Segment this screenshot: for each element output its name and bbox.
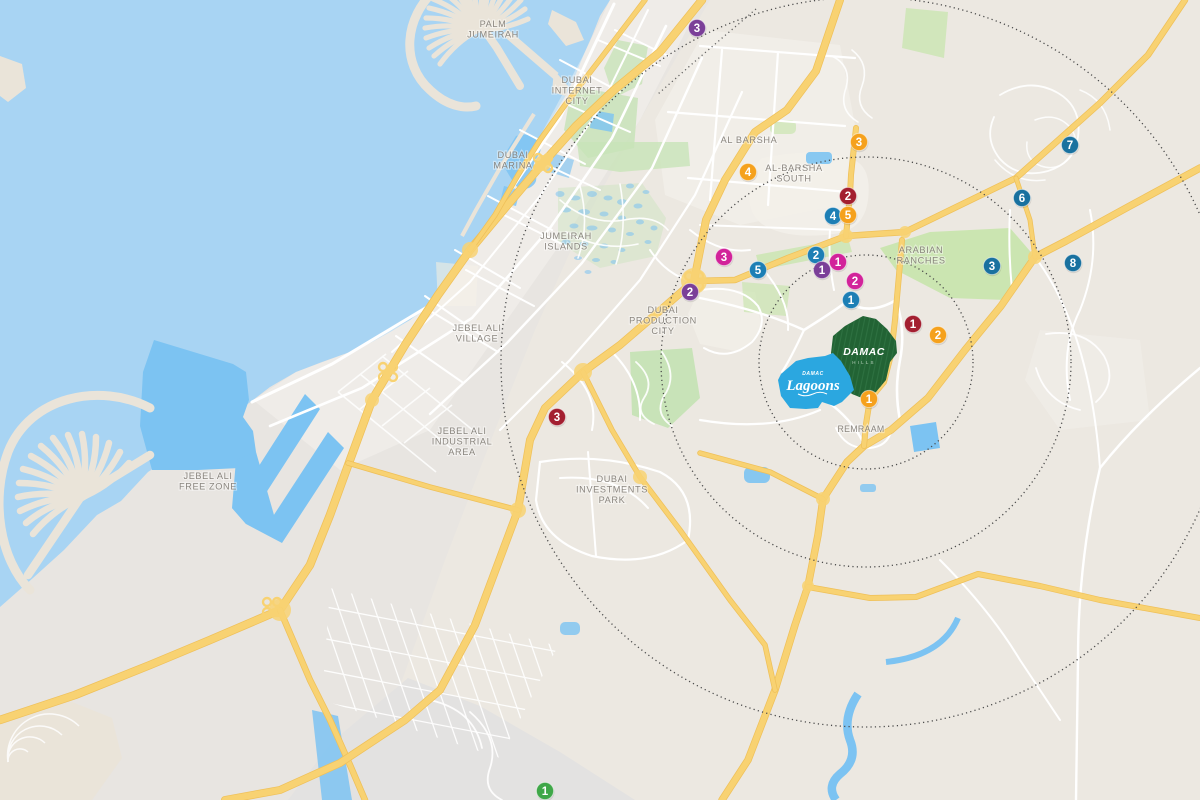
svg-text:3: 3 <box>694 23 700 35</box>
svg-text:1: 1 <box>866 394 873 406</box>
svg-text:3: 3 <box>989 261 995 273</box>
svg-text:1: 1 <box>819 265 826 277</box>
svg-text:DUBAIMARINA: DUBAIMARINA <box>493 150 533 171</box>
svg-text:1: 1 <box>910 319 917 331</box>
svg-text:7: 7 <box>1067 140 1073 152</box>
svg-text:JUMEIRAHISLANDS: JUMEIRAHISLANDS <box>540 231 592 252</box>
svg-text:Lagoons: Lagoons <box>785 378 840 394</box>
svg-text:DAMAC: DAMAC <box>802 371 824 377</box>
svg-text:8: 8 <box>1070 258 1077 270</box>
svg-text:6: 6 <box>1019 193 1025 205</box>
svg-text:ARABIANRANCHES: ARABIANRANCHES <box>896 245 945 266</box>
svg-text:3: 3 <box>856 137 862 149</box>
svg-text:5: 5 <box>845 210 852 222</box>
svg-text:2: 2 <box>845 191 851 203</box>
svg-text:JEBEL ALIVILLAGE: JEBEL ALIVILLAGE <box>453 323 502 344</box>
svg-text:JEBEL ALIFREE ZONE: JEBEL ALIFREE ZONE <box>179 471 237 492</box>
svg-text:2: 2 <box>852 276 858 288</box>
svg-text:2: 2 <box>813 250 819 262</box>
svg-text:3: 3 <box>554 412 560 424</box>
svg-text:5: 5 <box>755 265 762 277</box>
svg-text:DAMAC: DAMAC <box>843 346 885 358</box>
svg-text:4: 4 <box>830 211 837 223</box>
svg-text:1: 1 <box>835 257 842 269</box>
svg-text:AL BARSHA: AL BARSHA <box>721 135 778 145</box>
svg-text:1: 1 <box>848 295 855 307</box>
svg-text:2: 2 <box>687 287 693 299</box>
svg-text:2: 2 <box>935 330 941 342</box>
svg-text:REMRAAM: REMRAAM <box>837 424 884 434</box>
svg-text:3: 3 <box>721 252 727 264</box>
svg-text:4: 4 <box>745 167 752 179</box>
svg-text:1: 1 <box>542 786 549 798</box>
svg-text:HILLS: HILLS <box>852 360 876 365</box>
